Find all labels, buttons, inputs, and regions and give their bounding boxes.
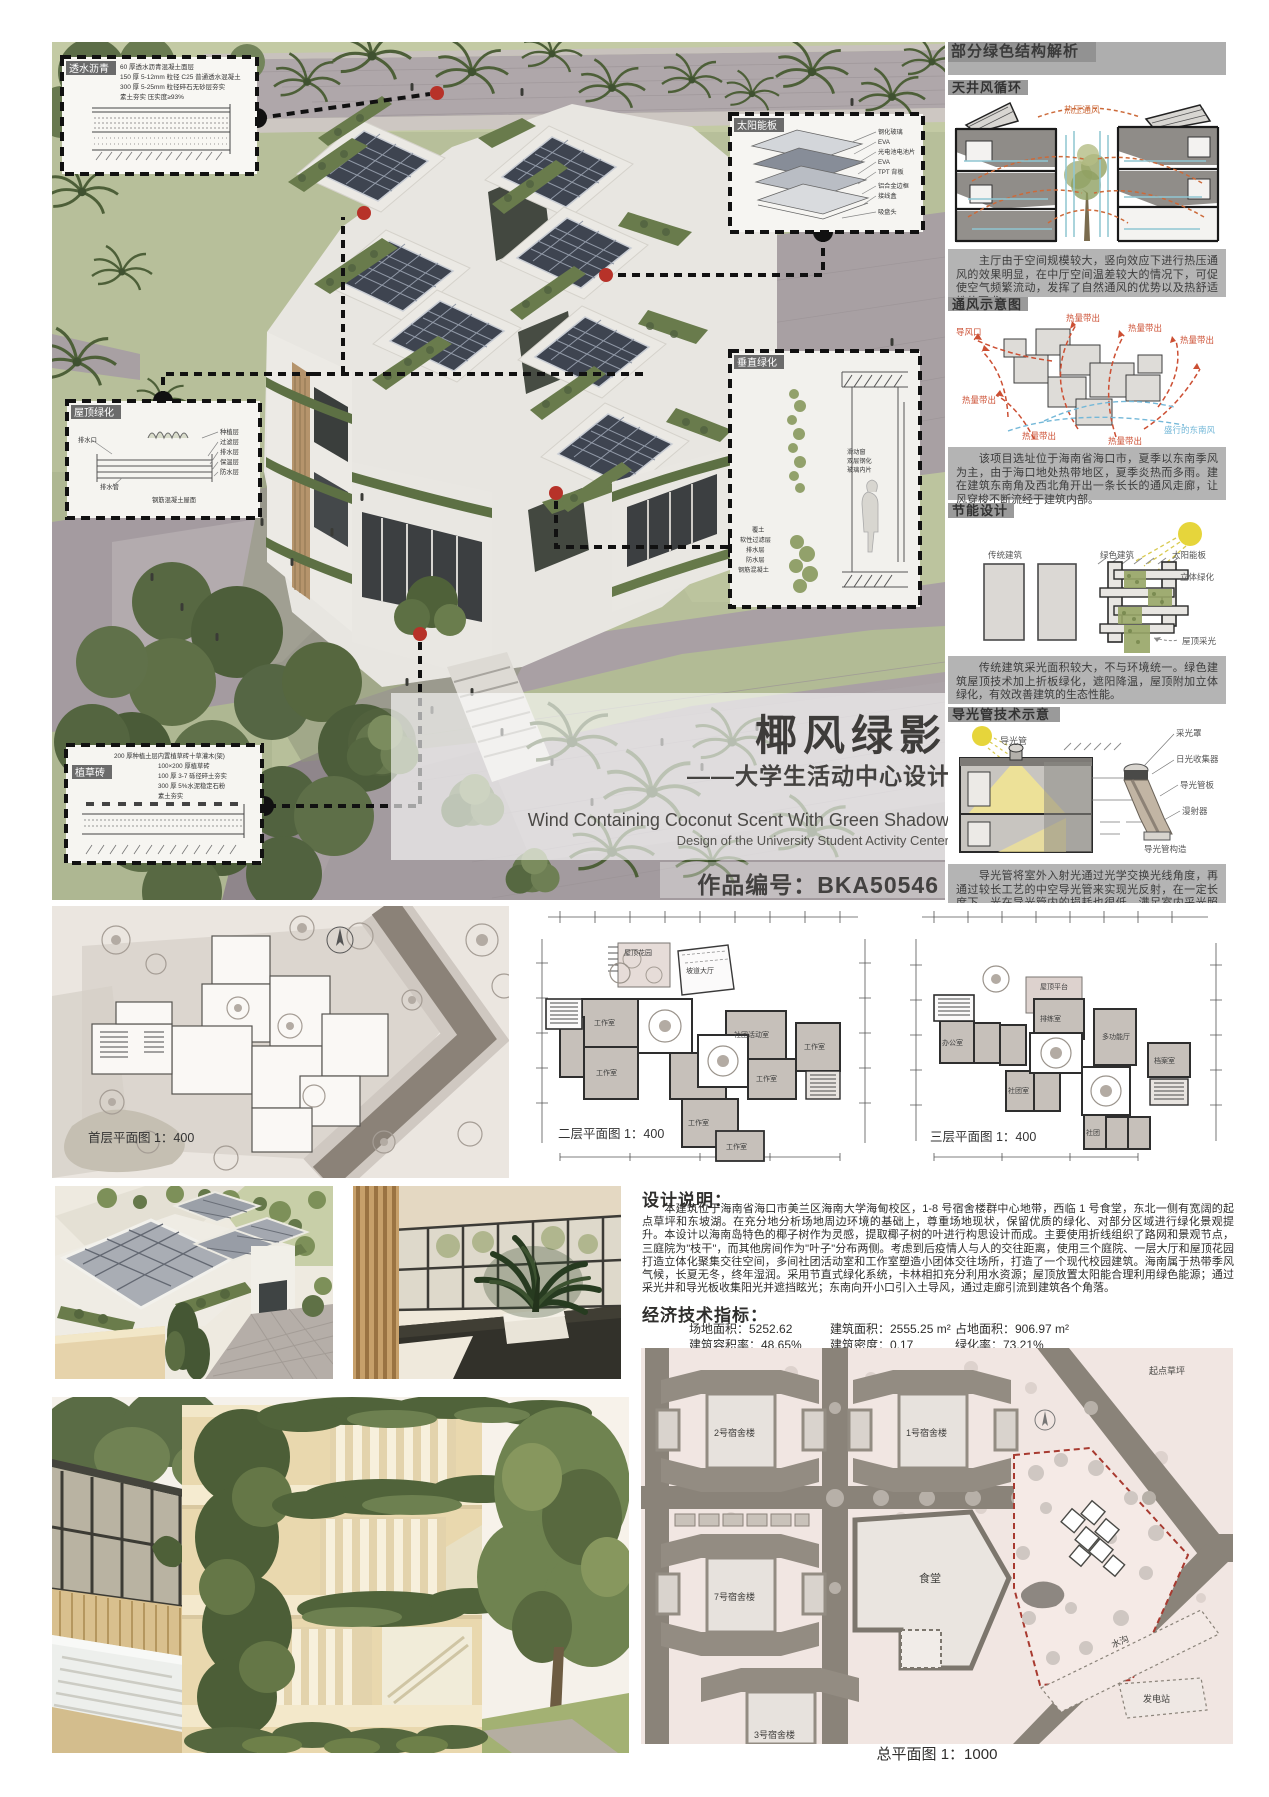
svg-text:盛行的东南风: 盛行的东南风 [1164, 425, 1216, 435]
svg-text:200 厚种植土层内置植草砖十草灌木(架): 200 厚种植土层内置植草砖十草灌木(架) [114, 751, 225, 760]
svg-text:覆土: 覆土 [752, 526, 764, 534]
svg-text:防水层: 防水层 [746, 556, 765, 564]
svg-text:过滤层: 过滤层 [220, 437, 239, 446]
svg-text:EVA: EVA [878, 139, 891, 146]
svg-text:7号宿舍楼: 7号宿舍楼 [714, 1591, 755, 1602]
svg-text:2号宿舍楼: 2号宿舍楼 [714, 1427, 755, 1438]
svg-text:热量带出: 热量带出 [1128, 323, 1162, 333]
svg-text:传统建筑: 传统建筑 [988, 550, 1023, 560]
svg-text:绿色建筑: 绿色建筑 [1100, 550, 1135, 560]
svg-text:EVA: EVA [878, 159, 891, 166]
svg-text:钢化玻璃: 钢化玻璃 [878, 128, 903, 136]
svg-text:滑动窗: 滑动窗 [847, 448, 866, 456]
svg-text:漫射器: 漫射器 [1182, 806, 1208, 816]
svg-text:钢筋混凝土: 钢筋混凝土 [738, 566, 769, 574]
svg-text:1号宿舍楼: 1号宿舍楼 [906, 1427, 947, 1438]
svg-text:办公室: 办公室 [942, 1038, 963, 1047]
svg-text:300 厚 5%水泥稳定石粉: 300 厚 5%水泥稳定石粉 [158, 781, 226, 790]
svg-text:屋顶平台: 屋顶平台 [1040, 982, 1068, 991]
svg-text:双层钢化: 双层钢化 [847, 457, 872, 465]
svg-text:软性过滤层: 软性过滤层 [740, 536, 771, 544]
svg-text:日光收集器: 日光收集器 [1176, 754, 1219, 764]
svg-text:150 厚 5-12mm 粒径 C25 普通透水混凝土: 150 厚 5-12mm 粒径 C25 普通透水混凝土 [120, 72, 241, 81]
svg-text:60 厚透水沥青混凝土面层: 60 厚透水沥青混凝土面层 [120, 62, 195, 71]
svg-text:热量带出: 热量带出 [1180, 335, 1214, 345]
svg-text:工作室: 工作室 [596, 1068, 617, 1077]
svg-text:接线盒: 接线盒 [878, 192, 897, 200]
svg-text:多功能厅: 多功能厅 [1102, 1032, 1130, 1041]
svg-text:档案室: 档案室 [1154, 1056, 1175, 1065]
svg-text:素土夯实: 素土夯实 [158, 791, 183, 800]
svg-text:300 厚 5-25mm 粒径碎石无砂层夯实: 300 厚 5-25mm 粒径碎石无砂层夯实 [120, 82, 226, 91]
svg-text:排水层: 排水层 [746, 546, 765, 554]
svg-text:防水层: 防水层 [220, 467, 239, 476]
svg-text:热量带出: 热量带出 [962, 395, 996, 405]
svg-text:三层平面图 1：400: 三层平面图 1：400 [930, 1130, 1036, 1144]
svg-text:植草砖: 植草砖 [75, 766, 105, 779]
svg-text:屋顶花园: 屋顶花园 [624, 948, 652, 957]
svg-text:热量带出: 热量带出 [1066, 313, 1100, 323]
svg-text:工作室: 工作室 [804, 1042, 825, 1051]
svg-text:工作室: 工作室 [726, 1142, 747, 1151]
svg-text:立体绿化: 立体绿化 [1180, 572, 1215, 582]
svg-text:社团: 社团 [1086, 1128, 1100, 1137]
svg-text:种植层: 种植层 [220, 427, 239, 436]
svg-text:排水层: 排水层 [220, 447, 239, 456]
svg-text:发电站: 发电站 [1143, 1693, 1170, 1704]
svg-text:钢筋混凝土屋面: 钢筋混凝土屋面 [152, 495, 196, 504]
svg-text:TPT 背板: TPT 背板 [878, 168, 904, 176]
svg-text:吸盘头: 吸盘头 [878, 208, 897, 216]
svg-text:素土夯实 压实度≥93%: 素土夯实 压实度≥93% [120, 92, 184, 101]
svg-text:垂直绿化: 垂直绿化 [737, 356, 777, 369]
svg-text:玻璃内片: 玻璃内片 [847, 466, 872, 474]
svg-text:100×200 厚植草砖: 100×200 厚植草砖 [158, 761, 210, 770]
svg-text:铝合金边框: 铝合金边框 [878, 182, 909, 190]
svg-text:工作室: 工作室 [688, 1118, 709, 1127]
svg-text:采光罩: 采光罩 [1176, 728, 1202, 738]
svg-text:屋顶采光: 屋顶采光 [1182, 636, 1217, 646]
svg-text:食堂: 食堂 [919, 1571, 941, 1585]
svg-text:热量带出: 热量带出 [1022, 431, 1056, 441]
svg-text:起点草坪: 起点草坪 [1149, 1365, 1185, 1376]
svg-text:坡道大厅: 坡道大厅 [686, 966, 714, 975]
svg-text:透水沥青: 透水沥青 [69, 62, 109, 75]
svg-text:热量带出: 热量带出 [1108, 436, 1142, 446]
svg-text:太阳能板: 太阳能板 [1172, 550, 1207, 560]
svg-text:导光管板: 导光管板 [1180, 780, 1215, 790]
svg-text:导光管构造: 导光管构造 [1144, 844, 1187, 854]
svg-text:热压通风: 热压通风 [1064, 104, 1100, 115]
svg-text:导光管: 导光管 [1000, 735, 1027, 746]
svg-text:工作室: 工作室 [594, 1018, 615, 1027]
svg-text:排水口: 排水口 [78, 435, 97, 444]
svg-text:屋顶绿化: 屋顶绿化 [74, 406, 114, 419]
svg-text:光电池电池片: 光电池电池片 [878, 148, 915, 156]
svg-text:社团活动室: 社团活动室 [734, 1030, 769, 1039]
svg-text:排练室: 排练室 [1040, 1014, 1061, 1023]
svg-text:太阳能板: 太阳能板 [737, 119, 777, 132]
svg-text:保温层: 保温层 [220, 457, 239, 466]
svg-text:工作室: 工作室 [756, 1074, 777, 1083]
svg-text:社团室: 社团室 [1008, 1086, 1029, 1095]
svg-text:100 厚 3-7 砾径碎土夯实: 100 厚 3-7 砾径碎土夯实 [158, 771, 227, 780]
svg-text:3号宿舍楼: 3号宿舍楼 [754, 1729, 795, 1740]
svg-text:二层平面图 1：400: 二层平面图 1：400 [558, 1127, 664, 1141]
svg-text:首层平面图 1：400: 首层平面图 1：400 [88, 1131, 194, 1145]
svg-text:导风口: 导风口 [956, 327, 982, 337]
